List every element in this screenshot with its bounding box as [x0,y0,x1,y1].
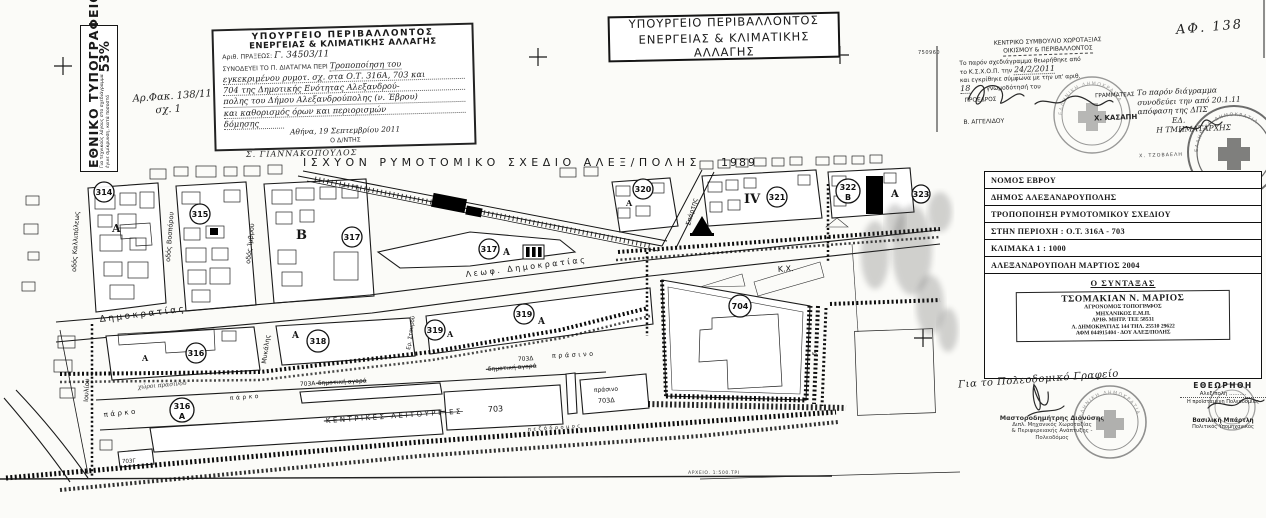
reduction-percent: 53% [103,41,108,72]
map-label: Α [111,222,121,235]
block-sub-letter: Β [845,193,851,202]
block-number: 319 [427,326,444,335]
printing-office-note2: έγινε σμίκρυνση, κατά ποσοστό [106,95,111,168]
table-row-area: ΣΤΗΝ ΠΕΡΙΟΧΗ : Ο.Τ. 316Α - 703 [985,223,1261,240]
map-label: Κ.Χ. [778,264,794,274]
block-number: 316 [188,349,205,358]
map-label: οδός Βοσπόρου [164,211,175,262]
review-role: Η προϊσταμένη Πολεοδομίας [1178,399,1266,405]
map-label: οδός Καλλιπόλεως [70,211,81,272]
map-label: Β [296,228,307,243]
secretary-label: ΓΡΑΜΜΑΤΕΑΣ [1095,91,1135,100]
map-label: πράσινο [594,386,619,394]
block-number: 315 [192,210,209,219]
triangle-outline [826,218,848,227]
block-number: 323 [913,190,930,199]
map-label: πάρκο [230,393,262,402]
block-number: 316 [174,402,191,411]
review-name2: Πολιτικός Υπομηχανικός [1178,424,1266,430]
title-block-table: ΝΟΜΟΣ ΕΒΡΟΥ ΔΗΜΟΣ ΑΛΕΞΑΝΔΡΟΥΠΟΛΗΣ ΤΡΟΠΟΠ… [984,171,1262,379]
map-label: 703Δ [518,355,535,363]
map-label: Α [446,329,454,339]
block-number: 318 [310,337,327,346]
planner-name: Μαστοροδημήτρης Διονύσης [993,414,1111,422]
map-label: 703Γ [122,458,137,465]
engineer-stamp: ΤΣΟΜΑΚΙΑΝ Ν. ΜΑΡΙΟΣ ΑΓΡΟΝΟΜΟΣ ΤΟΠΟΓΡΑΦΟΣ… [1016,290,1231,342]
engineer-line6: ΑΦΜ 044915404 - ΔΟΥ ΑΛΕΞ/ΠΟΛΗΣ [1017,329,1229,338]
map-label: πράσινο [552,350,596,360]
table-row-municipality: ΔΗΜΟΣ ΑΛΕΞΑΝΔΡΟΥΠΟΛΗΣ [985,189,1261,206]
block-number: 321 [769,193,786,202]
block-number: 320 [635,185,652,194]
review-place-line: Αλεξ/πολη .......... [1180,391,1266,398]
map-label: Ιουλίου [82,378,91,402]
map-label: Α [537,317,546,327]
scanned-plan-sheet: { "scan": { "archive_note": "ΑΡΧΕΙΟ. 1:5… [0,0,1266,518]
map-label: Α [141,353,149,363]
author-cell: Ο ΣΥΝΤΑΞΑΣ ΤΣΟΜΑΚΙΑΝ Ν. ΜΑΡΙΟΣ ΑΓΡΟΝΟΜΟΣ… [985,278,1261,378]
roman-three-building [523,245,544,259]
ministry-box-line2: ΕΝΕΡΓΕΙΑΣ & ΚΛΙΜΑΤΙΚΗΣ ΑΛΛΑΓΗΣ [610,29,839,62]
map-label: Μυκάλης [260,334,272,364]
map-label: Σπάρτης [684,197,699,227]
block-number: 314 [96,188,113,197]
map-label: 703 [488,404,504,414]
president-name: Β. ΑΓΓΕΛΙΔΟΥ [963,118,1004,127]
secretary-name: Χ. ΚΑΣΑΠΗ [1094,113,1138,123]
map-label: Α [291,331,300,341]
block-number: 704 [732,302,749,311]
praxis-value: Γ. 34503/11 [274,49,329,60]
block-sub-letter: Α [179,412,186,421]
block-number: 322 [840,183,857,192]
file-reference-note: Αρ.Φακ. 138/11 σχ. 1 [132,87,213,118]
map-label: πάρκο [103,407,138,419]
table-row-place-date: ΑΛΕΞΑΝΔΡΟΥΠΟΛΗ ΜΑΡΤΙΟΣ 2004 [985,257,1261,274]
map-label: 703Δ [598,396,616,405]
scan-smudges [861,192,958,352]
planner-stamp: Μαστοροδημήτρης Διονύσης Διπλ. Μηχανικός… [993,414,1111,441]
map-title: ΙΣΧΥΟΝ ΡΥΜΟΤΟΜΙΚΟ ΣΧΕΔΙΟ ΑΛΕΞ/ΠΟΛΗΣ 1989 [303,156,757,169]
map-label: Α [625,198,633,208]
president-label: ΠΡΟΕΔΡΟΣ [965,96,997,105]
archive-note: ΑΡΧΕΙΟ. 1:500.ΤΡΙ [688,471,740,476]
port-curves [4,330,88,482]
block-number: 319 [516,310,533,319]
block-number: 317 [481,245,498,254]
praxis-label: Αριθ. ΠΡΑΞΕΩΣ: [222,53,272,61]
block-number: 317 [344,233,361,242]
handwritten-side-note: Το παρόν διάγραμμα συνοδεύει την από 20.… [1137,84,1266,161]
map-title-text: ΙΣΧΥΟΝ ΡΥΜΟΤΟΜΙΚΟ ΣΧΕΔΙΟ ΑΛΕΞ/ΠΟΛΗΣ [303,156,701,169]
table-row-scale: ΚΛΙΜΑΚΑ 1 : 1000 [985,240,1261,257]
author-header: Ο ΣΥΝΤΑΞΑΣ [985,278,1261,288]
national-printing-office-stamp: ΕΘΝΙΚΟ ΤΥΠΟΓΡΑΦΕΙΟ Για τεχνικούς λόγους … [80,25,118,172]
council-body4b: γνωμοδότησή του [986,83,1041,92]
ministry-title-box: ΥΠΟΥΡΓΕΙΟ ΠΕΡΙΒΑΛΛΟΝΤΟΣ ΕΝΕΡΓΕΙΑΣ & ΚΛΙΜ… [608,12,841,63]
map-label: 703Α [300,380,317,388]
review-stamp: ΕΘΕΩΡΗΘΗ Αλεξ/πολη .......... Η προϊσταμ… [1178,381,1266,430]
council-opinion-no: 18 [960,84,971,94]
table-row-subject: ΤΡΟΠΟΠΟΙΗΣΗ ΡΥΜΟΤΟΜΙΚΟΥ ΣΧΕΔΙΟΥ [985,206,1261,223]
council-approval-stamp: ΚΕΝΤΡΙΚΟ ΣΥΜΒΟΥΛΙΟ ΧΩΡΟΤΑΞΙΑΣ ΟΙΚΙΣΜΟΥ &… [959,35,1140,127]
table-row-prefecture: ΝΟΜΟΣ ΕΒΡΟΥ [985,172,1261,189]
planner-line4: Πολεοδόμος [993,435,1111,441]
triangle-base [690,233,714,236]
map-label: IV [744,192,761,207]
council-line2: ΟΙΚΙΣΜΟΥ & ΠΕΡΙΒΑΛΛΟΝΤΟΣ [1003,44,1093,56]
review-title: ΕΘΕΩΡΗΘΗ [1178,381,1266,390]
map-label: Α [502,248,511,258]
document-number: 750960 [918,50,940,56]
map-title-year: 1989 [721,156,757,169]
map-label: Α [890,189,899,200]
ministry-decree-stamp: ΥΠΟΥΡΓΕΙΟ ΠΕΡΙΒΑΛΛΟΝΤΟΣ ΕΝΕΡΓΕΙΑΣ & ΚΛΙΜ… [211,23,476,152]
